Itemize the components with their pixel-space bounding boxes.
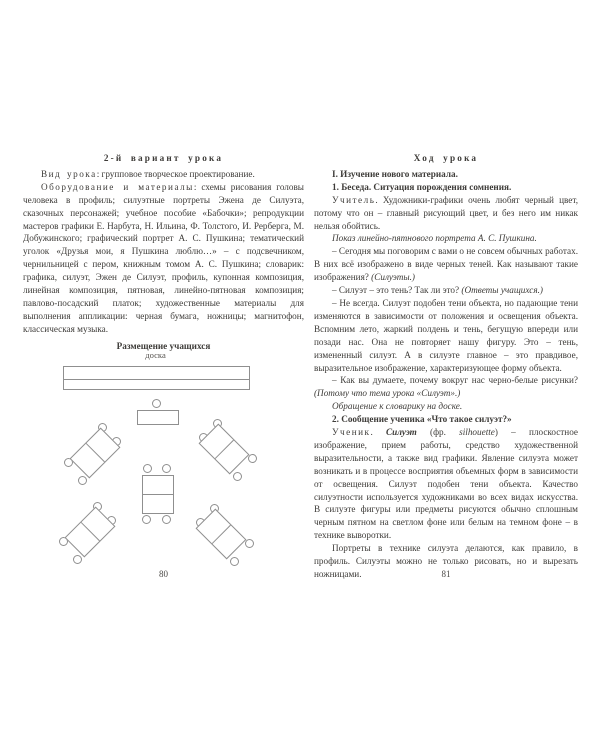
left-page-text: 2-й вариант урокаВид урока: групповое тв… [23, 152, 304, 353]
text-run: (Ответы учащихся.) [461, 285, 543, 295]
blackboard-tray-line [64, 379, 249, 380]
student-chair [248, 454, 257, 463]
text-run: (Потому что тема урока «Силуэт».) [314, 388, 460, 398]
paragraph: Обращение к словарику на доске. [314, 400, 578, 413]
text-run: ) – плоскостное изображение, прием работ… [314, 427, 578, 540]
student-desk [199, 424, 250, 475]
text-run: Ученик [332, 427, 371, 437]
desk-group-lower-left [58, 500, 122, 564]
student-desk [65, 507, 116, 558]
page-number-left: 80 [23, 569, 304, 579]
text-run: – Силуэт – это тень? Так ли это? [332, 285, 461, 295]
text-run: Силуэт [386, 427, 417, 437]
page-title: Ход урока [314, 152, 578, 165]
student-chair [73, 555, 82, 564]
student-desk [196, 509, 247, 560]
text-run: – Как вы думаете, почему вокруг нас черн… [332, 375, 578, 385]
paragraph: – Сегодня мы поговорим с вами о не совсе… [314, 245, 578, 284]
paragraph: Оборудование и материалы: схемы рисовани… [23, 181, 304, 336]
blackboard-label: доска [63, 350, 248, 360]
paragraph: – Силуэт – это тень? Так ли это? (Ответы… [314, 284, 578, 297]
teacher-chair [152, 399, 161, 408]
desk-group-upper-right [192, 417, 256, 481]
student-chair [233, 472, 242, 481]
right-page-text: Ход урокаI. Изучение нового материала.1.… [314, 152, 578, 581]
text-run: Обращение к словарику на доске. [332, 401, 462, 411]
text-run: I. Изучение нового материала. [332, 169, 458, 179]
text-run: Показ линейно-пятнового портрета А. С. П… [332, 233, 537, 243]
student-chair [162, 515, 171, 524]
student-chair [142, 515, 151, 524]
text-run: Оборудование и материалы [41, 182, 194, 192]
paragraph: Учитель. Художники-графики очень любят ч… [314, 194, 578, 233]
text-run: silhouette [459, 427, 495, 437]
student-chair [230, 557, 239, 566]
text-run: Учитель [332, 195, 375, 205]
paragraph: – Как вы думаете, почему вокруг нас черн… [314, 374, 578, 400]
page-number-right: 81 [314, 569, 578, 579]
text-run: (фр. [417, 427, 459, 437]
student-chair [245, 539, 254, 548]
student-desk [70, 428, 121, 479]
student-chair [143, 464, 152, 473]
desk-group-lower-right [189, 502, 253, 566]
text-run: (Силуэты.) [371, 272, 415, 282]
student-chair [78, 476, 87, 485]
text-run: 2-й вариант урока [104, 153, 223, 163]
paragraph: Показ линейно-пятнового портрета А. С. П… [314, 232, 578, 245]
desk-group-center [138, 461, 178, 527]
paragraph: Вид урока: групповое творческое проектир… [23, 168, 304, 181]
text-run: Вид урока [41, 169, 97, 179]
text-run: Ход урока [414, 153, 478, 163]
text-run: 1. Беседа. Ситуация порождения сомнения. [332, 182, 511, 192]
page-title: 2-й вариант урока [23, 152, 304, 165]
text-run: : групповое творческое проектирование. [97, 169, 255, 179]
paragraph: 1. Беседа. Ситуация порождения сомнения. [314, 181, 578, 194]
paragraph: 2. Сообщение ученика «Что такое силуэт?» [314, 413, 578, 426]
blackboard [63, 366, 250, 390]
desk-group-upper-left [63, 421, 127, 485]
paragraph: – Не всегда. Силуэт подобен тени объекта… [314, 297, 578, 374]
text-run: 2. Сообщение ученика «Что такое силуэт?» [332, 414, 512, 424]
text-run: . [371, 427, 387, 437]
student-desk [142, 475, 174, 514]
student-chair [162, 464, 171, 473]
paragraph: Ученик. Силуэт (фр. silhouette) – плоско… [314, 426, 578, 542]
text-run: – Не всегда. Силуэт подобен тени объекта… [314, 298, 578, 373]
text-run: – Сегодня мы поговорим с вами о не совсе… [314, 246, 578, 282]
book-spread: 2-й вариант урокаВид урока: групповое тв… [0, 0, 600, 750]
paragraph: I. Изучение нового материала. [314, 168, 578, 181]
seating-diagram: доска [23, 350, 303, 582]
text-run: : схемы рисования головы человека в проф… [23, 182, 304, 334]
teacher-desk [137, 410, 179, 425]
